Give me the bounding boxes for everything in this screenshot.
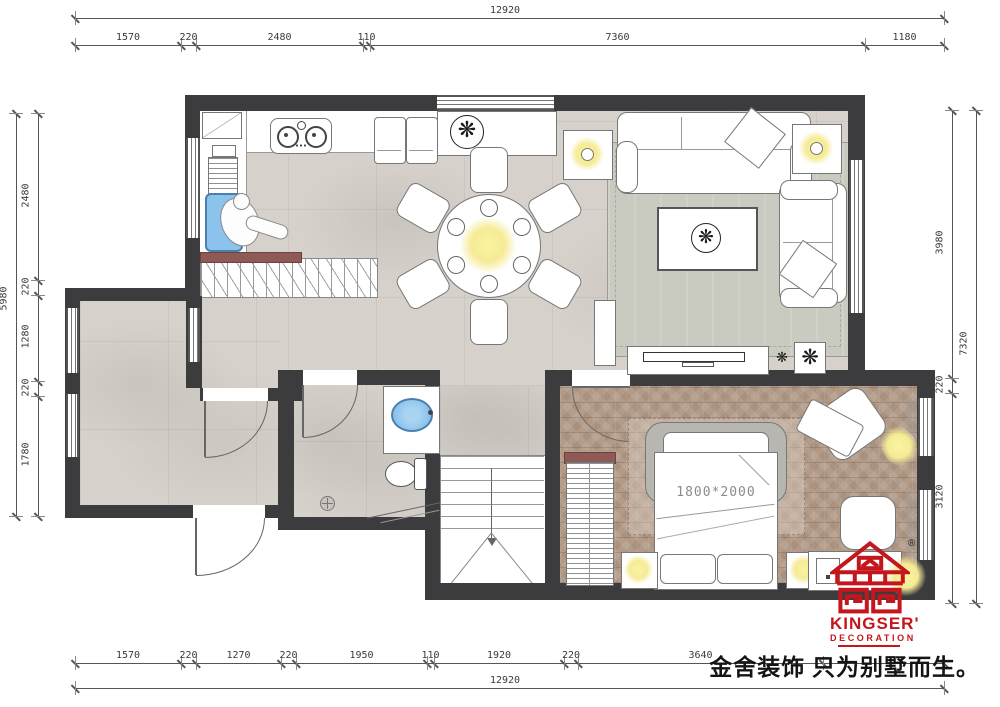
logo-underline (838, 645, 900, 647)
dim-line (75, 688, 944, 689)
floor-plan-canvas: ❋ ❋ ❋ ❋ (0, 0, 1000, 707)
dim-tick (71, 41, 80, 50)
dim-label: 1920 (467, 650, 531, 661)
dim-tick (423, 659, 432, 668)
dim-tick (12, 512, 21, 521)
logo-subtitle: DECORATION (830, 633, 916, 643)
dish-rack (208, 157, 238, 196)
toilet-tank (414, 458, 427, 490)
dim-label: 2480 (248, 32, 312, 43)
stove-burner-right (305, 126, 327, 148)
dim-tick (34, 377, 43, 386)
dim-label: 220 (257, 650, 321, 661)
wall-stairs-bedroom (545, 386, 560, 600)
dim-label: 1270 (207, 650, 271, 661)
tv-stand (682, 362, 714, 367)
loveseat-armrest-top (780, 180, 838, 200)
stove-pilot (297, 121, 306, 130)
dim-tick (948, 374, 957, 383)
dim-extension (945, 110, 959, 111)
dim-tick (574, 659, 583, 668)
dim-label: 3120 (935, 465, 946, 529)
coffee-table-plant-icon: ❋ (691, 223, 721, 253)
dim-extension (9, 113, 23, 114)
dim-extension (31, 280, 45, 281)
dim-tick (366, 41, 375, 50)
wall-leftroom-bathroom (278, 388, 294, 530)
lamp-glow-nightstand-left (624, 555, 653, 584)
dim-tick (34, 109, 43, 118)
dim-extension (181, 656, 182, 670)
dim-extension (75, 681, 76, 695)
dim-extension (281, 656, 282, 670)
dim-extension (31, 295, 45, 296)
floor-drain-icon (320, 496, 335, 511)
window-interior-pass (188, 308, 200, 362)
stove-burner-right-dot (312, 133, 316, 137)
wall-bathroom-top-stub (278, 370, 303, 388)
floor-drain-cross-h (322, 503, 333, 504)
brand-tagline: 金舍装饰 只为别墅而生。 (700, 648, 980, 682)
dim-extension (296, 656, 297, 670)
bar-stool-right-line (409, 150, 433, 151)
dim-tick (71, 684, 80, 693)
dim-extension (434, 656, 435, 670)
dining-chair (470, 147, 508, 193)
dining-chair (470, 299, 508, 345)
door-gap-entry (193, 505, 265, 518)
dim-tick (430, 659, 439, 668)
dim-label: 1180 (873, 32, 937, 43)
dim-extension (564, 656, 565, 670)
dim-tick (177, 659, 186, 668)
dim-extension (865, 38, 866, 52)
upper-staircase (200, 258, 378, 298)
dim-tick (34, 392, 43, 401)
bathroom-faucet-dot (428, 410, 433, 415)
dim-extension (578, 656, 579, 670)
dim-tick (71, 14, 80, 23)
bar-stool-left-line (377, 150, 401, 151)
dim-label: 220 (21, 254, 32, 318)
dim-tick (34, 512, 43, 521)
window-leftroom-lower (66, 394, 79, 457)
dim-label: 1780 (21, 423, 32, 487)
dim-tick (972, 106, 981, 115)
dim-extension (31, 516, 45, 517)
lamp-knob-dining (581, 148, 594, 161)
dim-tick (948, 106, 957, 115)
dim-extension (427, 656, 428, 670)
door-gap-left-room (203, 388, 268, 401)
kitchen-corner-cabinet (202, 112, 242, 139)
person-figure-head (233, 193, 250, 210)
bed-pillow-right (717, 554, 773, 584)
dim-extension (196, 656, 197, 670)
bathroom-sink (391, 398, 433, 432)
dim-label: 220 (539, 650, 603, 661)
dim-extension (9, 516, 23, 517)
dim-line (952, 110, 953, 603)
wall-bathroom-top (357, 370, 440, 385)
door-gap-bedroom (572, 370, 630, 386)
dining-place-setting (480, 275, 498, 293)
bed-pillow-left (660, 554, 716, 584)
dim-label: 220 (935, 352, 946, 416)
stair-arrow-shaft (491, 468, 492, 538)
dim-tick (192, 41, 201, 50)
window-leftroom-upper (66, 308, 79, 373)
dim-extension (945, 378, 959, 379)
dim-tick (71, 659, 80, 668)
stair-treads (441, 456, 544, 534)
lamp-glow-dining-center (460, 217, 516, 273)
dim-tick (192, 659, 201, 668)
dim-label: 3980 (935, 211, 946, 275)
dim-extension (31, 113, 45, 114)
dim-tick (34, 276, 43, 285)
dim-extension (370, 38, 371, 52)
dim-label: 110 (335, 32, 399, 43)
dim-tick (948, 389, 957, 398)
dim-label: 220 (157, 32, 221, 43)
bed-blanket-line-2 (657, 516, 774, 540)
dim-tick (292, 659, 301, 668)
dim-tick (940, 14, 949, 23)
dim-extension (181, 38, 182, 52)
loveseat-back-line (832, 187, 833, 299)
tv-icon (643, 352, 745, 362)
stove-icon (270, 118, 332, 154)
dim-label: 7320 (959, 312, 970, 376)
dim-extension (363, 38, 364, 52)
window-kitchen-left (186, 138, 200, 238)
dim-extension (944, 681, 945, 695)
bed-fold-line (733, 455, 775, 485)
dim-tick (861, 41, 870, 50)
registered-mark: ® (908, 538, 915, 549)
dim-extension (969, 110, 983, 111)
tv-plant-small-icon: ❋ (774, 350, 790, 366)
dim-extension (944, 11, 945, 25)
sofa-cushion-divider (681, 117, 682, 149)
dim-extension (75, 38, 76, 52)
dim-line (976, 110, 977, 603)
dim-label: 1570 (96, 32, 160, 43)
logo-name: KINGSER' (830, 614, 920, 634)
lamp-knob-living (810, 142, 823, 155)
dim-tick (359, 41, 368, 50)
dim-tick (940, 684, 949, 693)
window-top-dining (437, 95, 554, 111)
floor-corridor (440, 386, 545, 461)
dim-line (16, 113, 17, 516)
dim-label: 110 (399, 650, 463, 661)
dim-label: 7360 (586, 32, 650, 43)
dim-tick (34, 291, 43, 300)
dim-extension (944, 38, 945, 52)
dim-label: 2480 (21, 163, 32, 227)
dim-extension (75, 11, 76, 25)
dim-extension (31, 396, 45, 397)
stair-stringer (200, 252, 302, 263)
dim-label: 1280 (21, 305, 32, 369)
dim-label: 220 (21, 355, 32, 419)
toilet-bowl (385, 461, 417, 487)
kitchen-tray (212, 145, 236, 157)
bed-blanket-line (656, 504, 774, 519)
dim-extension (945, 393, 959, 394)
dim-label: 1950 (330, 650, 394, 661)
dim-label: 12920 (473, 675, 537, 686)
wall-bathroom-bottom (278, 517, 440, 530)
dim-extension (75, 656, 76, 670)
dim-tick (940, 41, 949, 50)
kingser-logo: ® KINGSER' DECORATION (828, 540, 988, 652)
dim-tick (277, 659, 286, 668)
dim-line (75, 45, 944, 46)
dim-extension (196, 38, 197, 52)
plant-pot-icon: ❋ (450, 115, 484, 149)
stove-burner-left-dot (284, 133, 288, 137)
sofa-armrest-left (616, 141, 638, 193)
door-gap-bathroom (303, 370, 357, 385)
dim-line (38, 113, 39, 516)
window-bedroom-right-upper (918, 398, 934, 456)
stove-knobs (295, 144, 307, 147)
wardrobe (566, 462, 614, 586)
dining-place-setting (480, 199, 498, 217)
dim-line (75, 18, 944, 19)
kingser-house-icon (830, 540, 910, 614)
dim-tick (177, 41, 186, 50)
wall-annex-top (65, 288, 200, 301)
wardrobe-divider (589, 463, 590, 585)
bed-size-label: 1800*2000 (655, 485, 777, 500)
bar-stool-right (406, 117, 438, 164)
bar-stool-left (374, 117, 406, 164)
wall-top-right (554, 95, 865, 111)
dim-label: 1570 (96, 650, 160, 661)
dim-extension (31, 381, 45, 382)
tv-plant-large-icon: ❋ (794, 342, 826, 374)
dim-tick (560, 659, 569, 668)
wall-top-left (185, 95, 437, 111)
dim-label: 12920 (473, 5, 537, 16)
dim-label: 5980 (0, 267, 10, 331)
dim-tick (12, 109, 21, 118)
side-chair-strip (594, 300, 616, 366)
sofa-back-line (621, 149, 805, 150)
window-living-right (849, 160, 864, 313)
door-swing-entry (196, 518, 265, 576)
dim-label: 220 (157, 650, 221, 661)
